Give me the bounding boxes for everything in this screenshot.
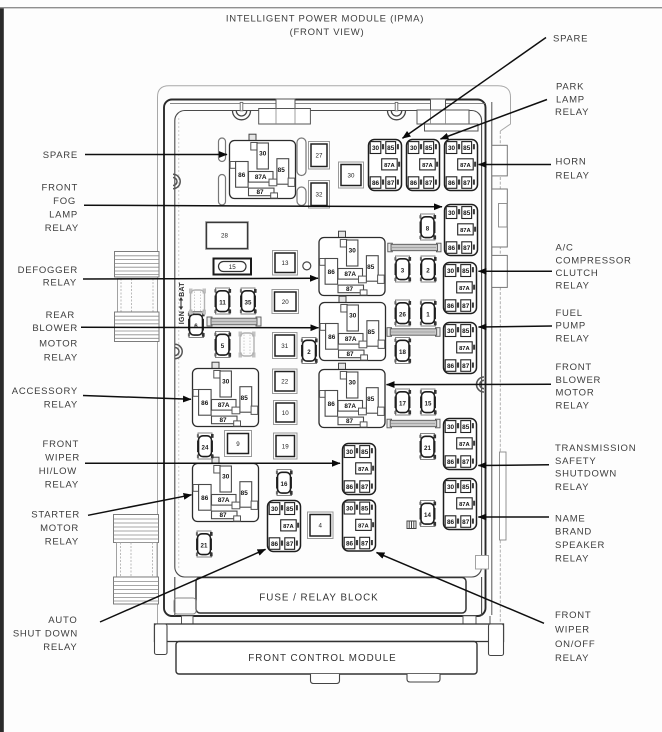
svg-text:RELAY: RELAY — [555, 653, 589, 664]
svg-text:FRONT: FRONT — [556, 362, 592, 373]
svg-text:FUSE / RELAY BLOCK: FUSE / RELAY BLOCK — [259, 593, 378, 604]
svg-text:22: 22 — [281, 379, 288, 386]
svg-text:DEFOGGER: DEFOGGER — [18, 265, 78, 276]
svg-text:3: 3 — [401, 267, 405, 274]
svg-text:BLOWER: BLOWER — [32, 323, 78, 334]
svg-text:LAMP: LAMP — [49, 210, 78, 221]
svg-text:NAME: NAME — [555, 514, 585, 525]
svg-text:RELAY: RELAY — [555, 554, 589, 565]
svg-text:FRONT CONTROL MODULE: FRONT CONTROL MODULE — [248, 653, 396, 664]
svg-text:WIPER: WIPER — [45, 453, 80, 464]
svg-text:16: 16 — [281, 481, 288, 488]
svg-text:HI/LOW: HI/LOW — [39, 466, 77, 477]
svg-text:IGN: IGN — [179, 311, 186, 324]
svg-text:ACCESSORY: ACCESSORY — [12, 386, 78, 397]
svg-text:MOTOR: MOTOR — [556, 388, 595, 399]
svg-text:11: 11 — [219, 299, 226, 306]
svg-text:5: 5 — [221, 343, 225, 350]
svg-text:18: 18 — [399, 349, 406, 356]
svg-text:6: 6 — [194, 323, 198, 330]
svg-text:BRAND: BRAND — [555, 527, 592, 538]
svg-text:15: 15 — [229, 264, 236, 271]
svg-text:REAR: REAR — [46, 310, 75, 321]
svg-text:PARK: PARK — [556, 82, 584, 93]
svg-text:FRONT: FRONT — [43, 439, 79, 450]
svg-text:RELAY: RELAY — [556, 334, 590, 345]
svg-text:RELAY: RELAY — [43, 642, 77, 653]
svg-text:14: 14 — [424, 512, 431, 519]
svg-text:19: 19 — [282, 443, 289, 450]
svg-text:15: 15 — [425, 400, 432, 407]
svg-text:RELAY: RELAY — [555, 482, 589, 493]
svg-text:BLOWER: BLOWER — [556, 375, 602, 386]
svg-text:RELAY: RELAY — [45, 537, 79, 548]
svg-text:COMPRESSOR: COMPRESSOR — [556, 256, 632, 267]
svg-text:10: 10 — [282, 410, 289, 417]
svg-text:RELAY: RELAY — [45, 223, 79, 234]
svg-text:FOG: FOG — [53, 196, 76, 207]
svg-text:RELAY: RELAY — [556, 171, 590, 182]
svg-text:17: 17 — [399, 400, 406, 407]
svg-text:9: 9 — [236, 441, 240, 448]
svg-text:1: 1 — [426, 311, 430, 318]
svg-text:HORN: HORN — [556, 157, 587, 168]
svg-text:ON/OFF: ON/OFF — [555, 639, 595, 650]
svg-text:FUEL: FUEL — [556, 308, 583, 319]
svg-text:SAFETY: SAFETY — [555, 456, 596, 467]
svg-text:MOTOR: MOTOR — [39, 339, 78, 350]
svg-text:FRONT: FRONT — [42, 183, 78, 194]
svg-text:RELAY: RELAY — [556, 281, 590, 292]
svg-text:INTELLIGENT POWER MODULE (IPMA: INTELLIGENT POWER MODULE (IPMA) — [226, 14, 424, 25]
svg-text:A/C: A/C — [556, 243, 574, 254]
svg-text:SHUTDOWN: SHUTDOWN — [555, 469, 617, 480]
svg-text:RELAY: RELAY — [555, 107, 589, 118]
svg-text:2: 2 — [307, 349, 311, 356]
svg-text:FRONT: FRONT — [555, 610, 591, 621]
svg-text:2: 2 — [426, 267, 430, 274]
svg-text:RELAY: RELAY — [556, 401, 590, 412]
svg-text:PUMP: PUMP — [556, 321, 586, 332]
svg-text:STARTER: STARTER — [31, 510, 80, 521]
svg-text:8: 8 — [426, 225, 430, 232]
svg-text:20: 20 — [282, 299, 289, 306]
svg-text:MOTOR: MOTOR — [40, 523, 79, 534]
svg-text:SPARE: SPARE — [553, 34, 588, 45]
svg-text:21: 21 — [201, 542, 208, 549]
svg-text:AUTO: AUTO — [48, 615, 77, 626]
svg-text:24: 24 — [202, 444, 209, 451]
svg-text:RELAY: RELAY — [43, 278, 77, 289]
svg-text:CLUTCH: CLUTCH — [556, 268, 599, 279]
svg-text:SHUT DOWN: SHUT DOWN — [13, 629, 78, 640]
svg-text:4: 4 — [318, 523, 322, 530]
svg-text:SPARE: SPARE — [43, 150, 78, 161]
svg-text:LAMP: LAMP — [556, 95, 585, 106]
svg-text:(FRONT VIEW): (FRONT VIEW) — [290, 27, 365, 38]
svg-text:TRANSMISSION: TRANSMISSION — [555, 443, 636, 454]
svg-text:27: 27 — [316, 153, 323, 160]
svg-text:26: 26 — [399, 311, 406, 318]
svg-text:28: 28 — [221, 233, 228, 240]
svg-text:32: 32 — [316, 192, 323, 199]
svg-text:21: 21 — [424, 445, 431, 452]
svg-text:31: 31 — [281, 343, 288, 350]
svg-text:RELAY: RELAY — [45, 480, 79, 491]
svg-text:35: 35 — [245, 299, 252, 306]
svg-text:RELAY: RELAY — [44, 400, 78, 411]
svg-text:SPEAKER: SPEAKER — [555, 540, 605, 551]
svg-text:30: 30 — [348, 172, 355, 179]
svg-text:13: 13 — [282, 260, 289, 267]
svg-text:RELAY: RELAY — [44, 353, 78, 364]
svg-text:WIPER: WIPER — [555, 625, 590, 636]
svg-text:BAT: BAT — [179, 282, 186, 297]
